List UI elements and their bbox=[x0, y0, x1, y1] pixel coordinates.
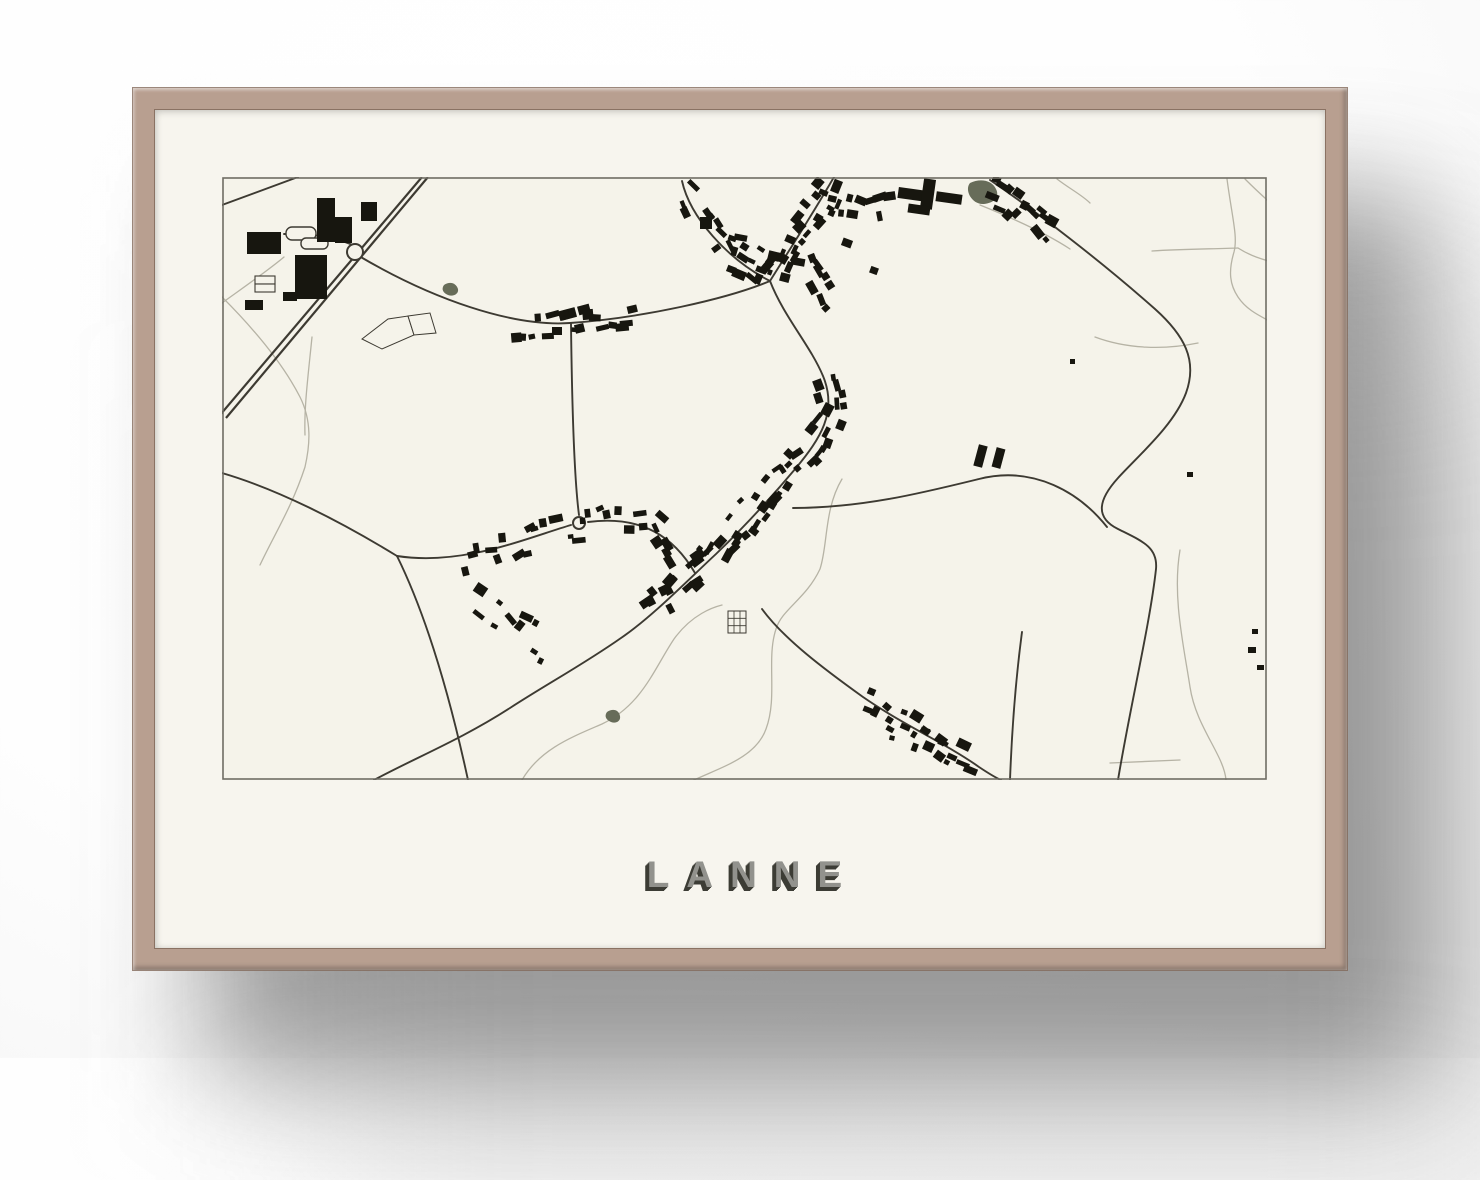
wooden-poster-frame: LANNE bbox=[133, 88, 1347, 970]
poster-title: LANNE bbox=[222, 856, 1267, 893]
city-map-print bbox=[222, 177, 1267, 780]
map-graphic bbox=[222, 177, 1267, 780]
photo-scene: LANNE bbox=[0, 0, 1480, 1058]
poster-mat: LANNE bbox=[155, 110, 1325, 948]
